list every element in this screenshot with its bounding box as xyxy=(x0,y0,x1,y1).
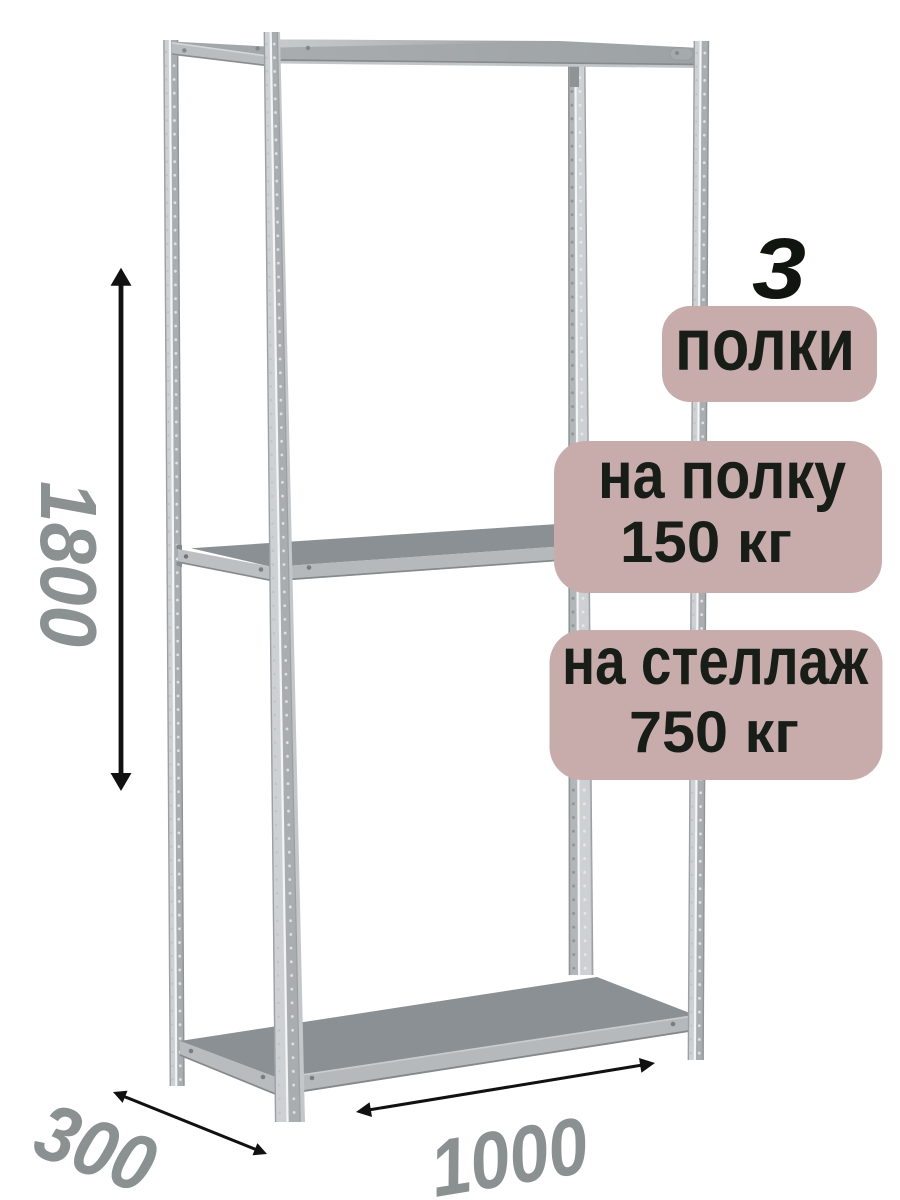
svg-text:полки: полки xyxy=(675,303,855,386)
svg-text:на полку: на полку xyxy=(598,438,846,513)
svg-text:1800: 1800 xyxy=(24,481,113,647)
svg-text:на стеллаж: на стеллаж xyxy=(562,624,869,699)
svg-text:150 кг: 150 кг xyxy=(620,510,792,575)
svg-text:750 кг: 750 кг xyxy=(629,700,799,765)
